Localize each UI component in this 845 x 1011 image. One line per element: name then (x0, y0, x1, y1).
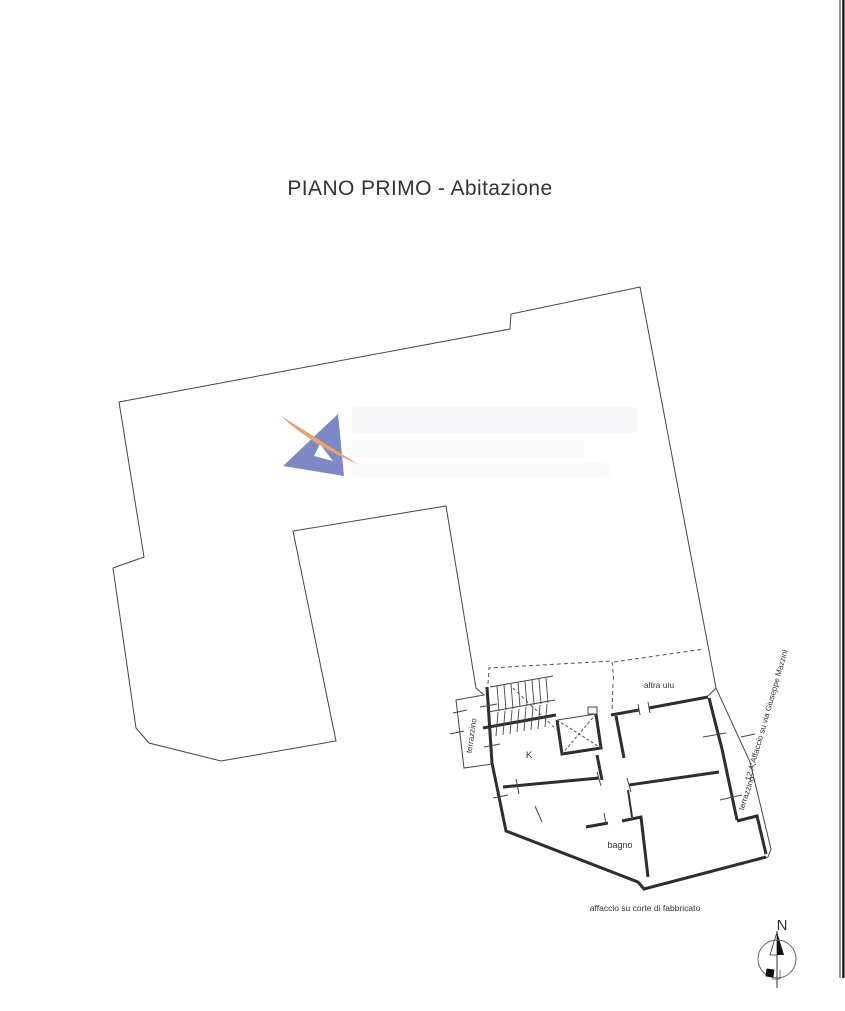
elevator-top (557, 714, 596, 720)
label-bagno: bagno (607, 840, 632, 850)
stair-landing-dashed (488, 661, 614, 684)
label-affaccio-corte: affaccio su corte di fabbricato (590, 903, 701, 913)
dashed-lines (488, 649, 704, 754)
compass: N (758, 917, 796, 988)
wall-terrace-right-end (737, 816, 766, 854)
corner-connector (707, 688, 716, 697)
page-border (840, 0, 843, 978)
label-affaccio-via: 12.A;Affaccio su via Giuseppe Mazzini (744, 649, 790, 782)
watermark-ghost-text (352, 407, 638, 477)
stair-direction-dashed (513, 688, 558, 731)
compass-arrow-right (777, 932, 784, 955)
unit-boundary-dashed (614, 649, 704, 662)
compass-square (765, 968, 774, 977)
compass-arrow-left (770, 932, 777, 955)
wall-mid-right (629, 772, 719, 785)
watermark-logo (281, 414, 358, 476)
label-altra-uiu: altra uiu (644, 680, 675, 690)
terrace-left-rail-1 (450, 731, 464, 734)
window-tick (703, 733, 726, 737)
wall-left-bottom (487, 687, 766, 889)
page-title: PIANO PRIMO - Abitazione (287, 177, 552, 200)
wall-altra-uiu (611, 697, 708, 715)
wall-above-bagno (628, 790, 632, 817)
window-tick (535, 806, 542, 822)
staircase (496, 678, 548, 736)
floor-plan-drawing: PIANO PRIMO - Abitazione (0, 0, 845, 1011)
floor-plan-page: PIANO PRIMO - Abitazione (0, 0, 845, 1011)
north-label: N (777, 917, 788, 934)
wall-interior-vertical (616, 716, 624, 758)
elevator-machine-box (588, 707, 597, 714)
label-terrazzino-left: terrazzino (465, 717, 479, 754)
landing-right-dashed (612, 684, 613, 712)
label-kitchen: K (526, 750, 533, 761)
wall-right (709, 698, 737, 820)
building-outline (113, 287, 771, 889)
stair-rail-top (490, 676, 553, 687)
terrace-left-rail-2 (453, 710, 467, 713)
window-tick (741, 734, 755, 737)
